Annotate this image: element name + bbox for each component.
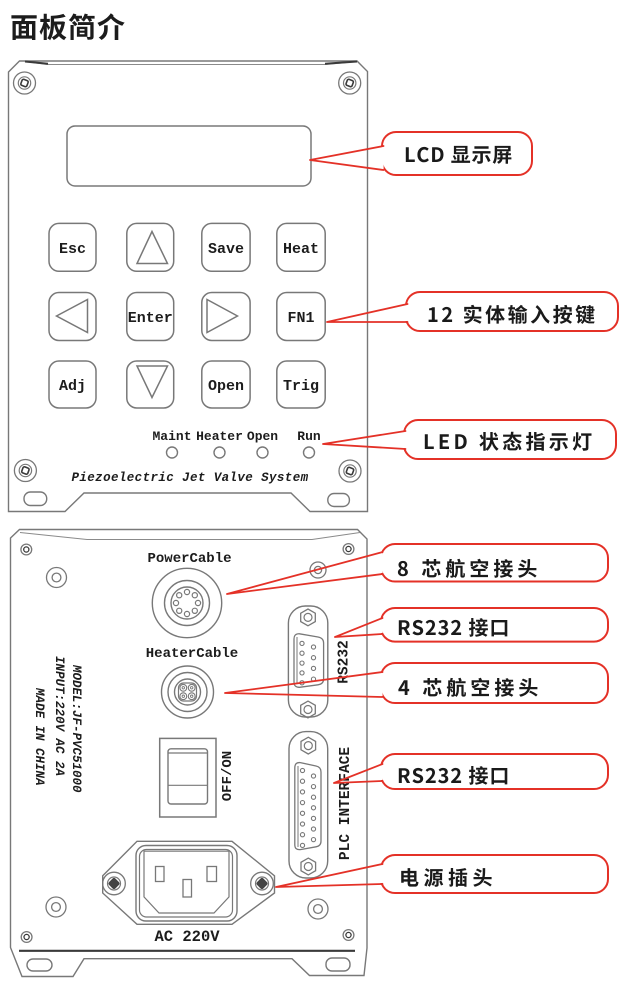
svg-text:PLC INTERFACE: PLC INTERFACE bbox=[338, 747, 354, 860]
svg-text:Heater: Heater bbox=[196, 429, 243, 444]
svg-text:PowerCable: PowerCable bbox=[147, 551, 231, 567]
svg-text:Maint: Maint bbox=[152, 429, 191, 444]
svg-text:HeaterCable: HeaterCable bbox=[146, 646, 238, 662]
svg-text:Trig: Trig bbox=[283, 378, 319, 395]
svg-text:Run: Run bbox=[297, 429, 321, 444]
svg-text:Open: Open bbox=[247, 429, 278, 444]
svg-text:Open: Open bbox=[208, 378, 244, 395]
svg-text:Enter: Enter bbox=[128, 310, 173, 327]
svg-text:Adj: Adj bbox=[59, 378, 86, 395]
svg-text:Piezoelectric Jet Valve System: Piezoelectric Jet Valve System bbox=[71, 471, 308, 485]
svg-text:AC 220V: AC 220V bbox=[154, 928, 220, 946]
svg-text:Esc: Esc bbox=[59, 241, 86, 258]
svg-text:Heat: Heat bbox=[283, 241, 319, 258]
svg-text:MODEL:JF-PVC51000: MODEL:JF-PVC51000 bbox=[69, 664, 83, 793]
svg-text:Save: Save bbox=[208, 241, 244, 258]
svg-text:MADE IN CHINA: MADE IN CHINA bbox=[32, 687, 46, 786]
svg-text:INPUT:220V AC 2A: INPUT:220V AC 2A bbox=[52, 656, 66, 776]
svg-text:FN1: FN1 bbox=[287, 310, 314, 327]
svg-text:OFF/ON: OFF/ON bbox=[220, 751, 236, 801]
